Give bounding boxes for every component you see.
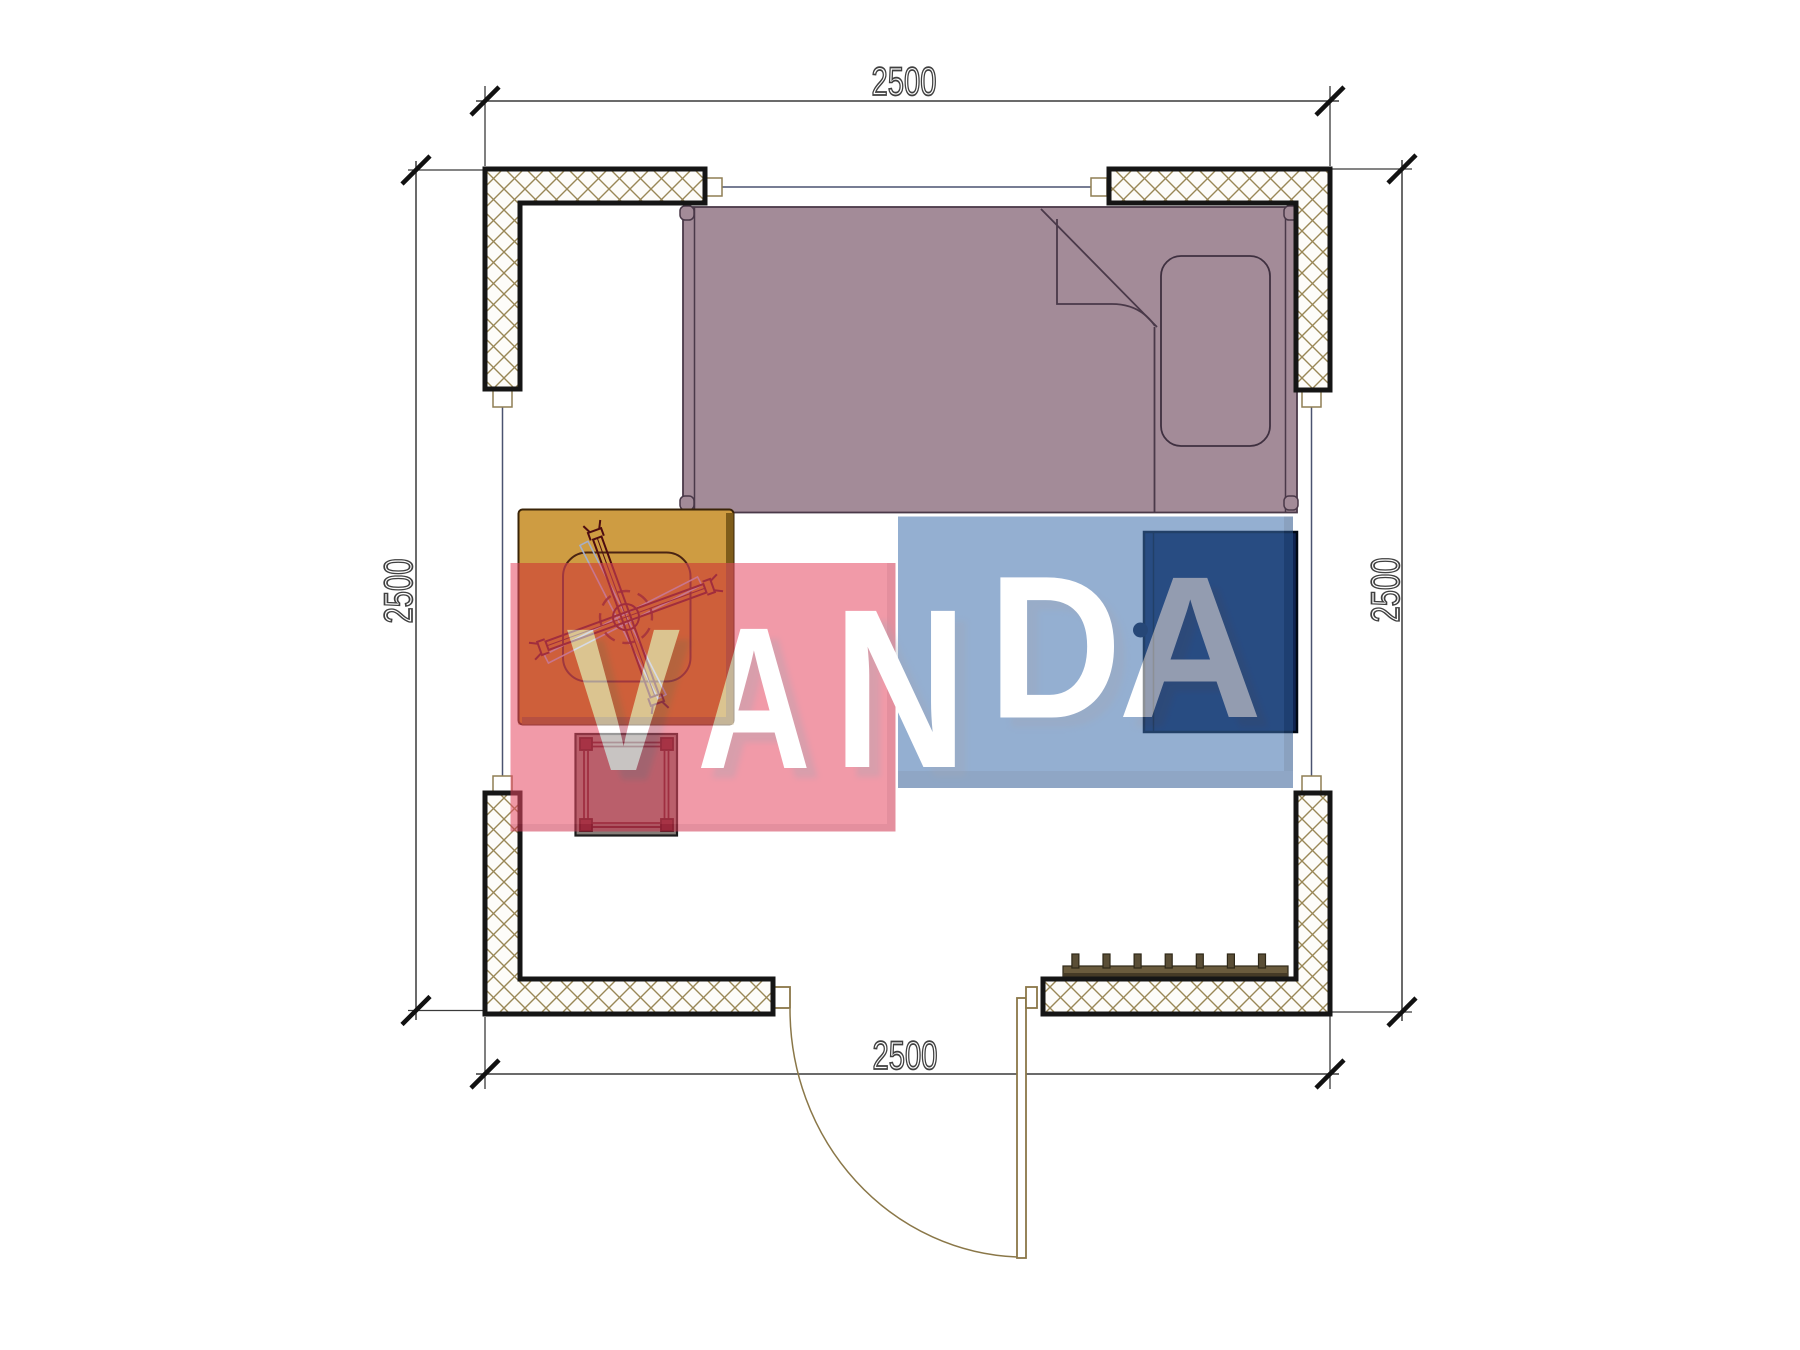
svg-text:V: V xyxy=(566,585,681,813)
svg-text:A: A xyxy=(697,586,811,811)
svg-text:A: A xyxy=(1118,534,1263,760)
svg-text:2500: 2500 xyxy=(873,1034,938,1079)
svg-text:N: N xyxy=(833,561,967,815)
svg-text:2500: 2500 xyxy=(1364,558,1409,623)
svg-text:D: D xyxy=(988,534,1122,761)
svg-text:2500: 2500 xyxy=(377,559,422,624)
svg-text:2500: 2500 xyxy=(872,60,937,105)
